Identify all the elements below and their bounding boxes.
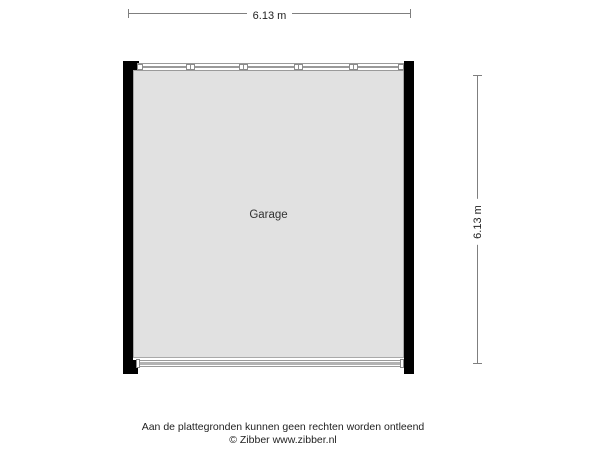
garage-door-symbol (136, 359, 404, 368)
wall-right (404, 61, 414, 374)
footer-copyright: © Zibber www.zibber.nl (103, 434, 463, 447)
floorplan-canvas: 6.13 m 6.13 m Garage Aan de plattegronde… (0, 0, 600, 450)
garage-door-line (136, 366, 404, 367)
room-label: Garage (133, 209, 404, 221)
window-joint-icon (349, 64, 358, 70)
garage-door-cap-icon (400, 359, 404, 368)
window-glassline (137, 66, 404, 68)
window-symbol-top (137, 63, 404, 71)
footer: Aan de plattegronden kunnen geen rechten… (103, 421, 463, 446)
dimension-right-tick-top (473, 75, 482, 76)
window-joint-icon (239, 64, 248, 70)
dimension-right-tick-bottom (473, 363, 482, 364)
footer-disclaimer: Aan de plattegronden kunnen geen rechten… (103, 421, 463, 434)
window-joint-icon (294, 64, 303, 70)
garage-door-cap-icon (136, 359, 140, 368)
window-end-cap-icon (398, 64, 404, 70)
garage-door-slab (136, 362, 404, 365)
dimension-top: 6.13 m (128, 6, 411, 24)
window-joint-icon (186, 64, 195, 70)
garage-door-line (136, 360, 404, 361)
dimension-top-label: 6.13 m (247, 9, 293, 23)
dimension-right-label: 6.13 m (471, 199, 485, 245)
wall-left (123, 61, 133, 374)
window-end-cap-icon (137, 64, 143, 70)
